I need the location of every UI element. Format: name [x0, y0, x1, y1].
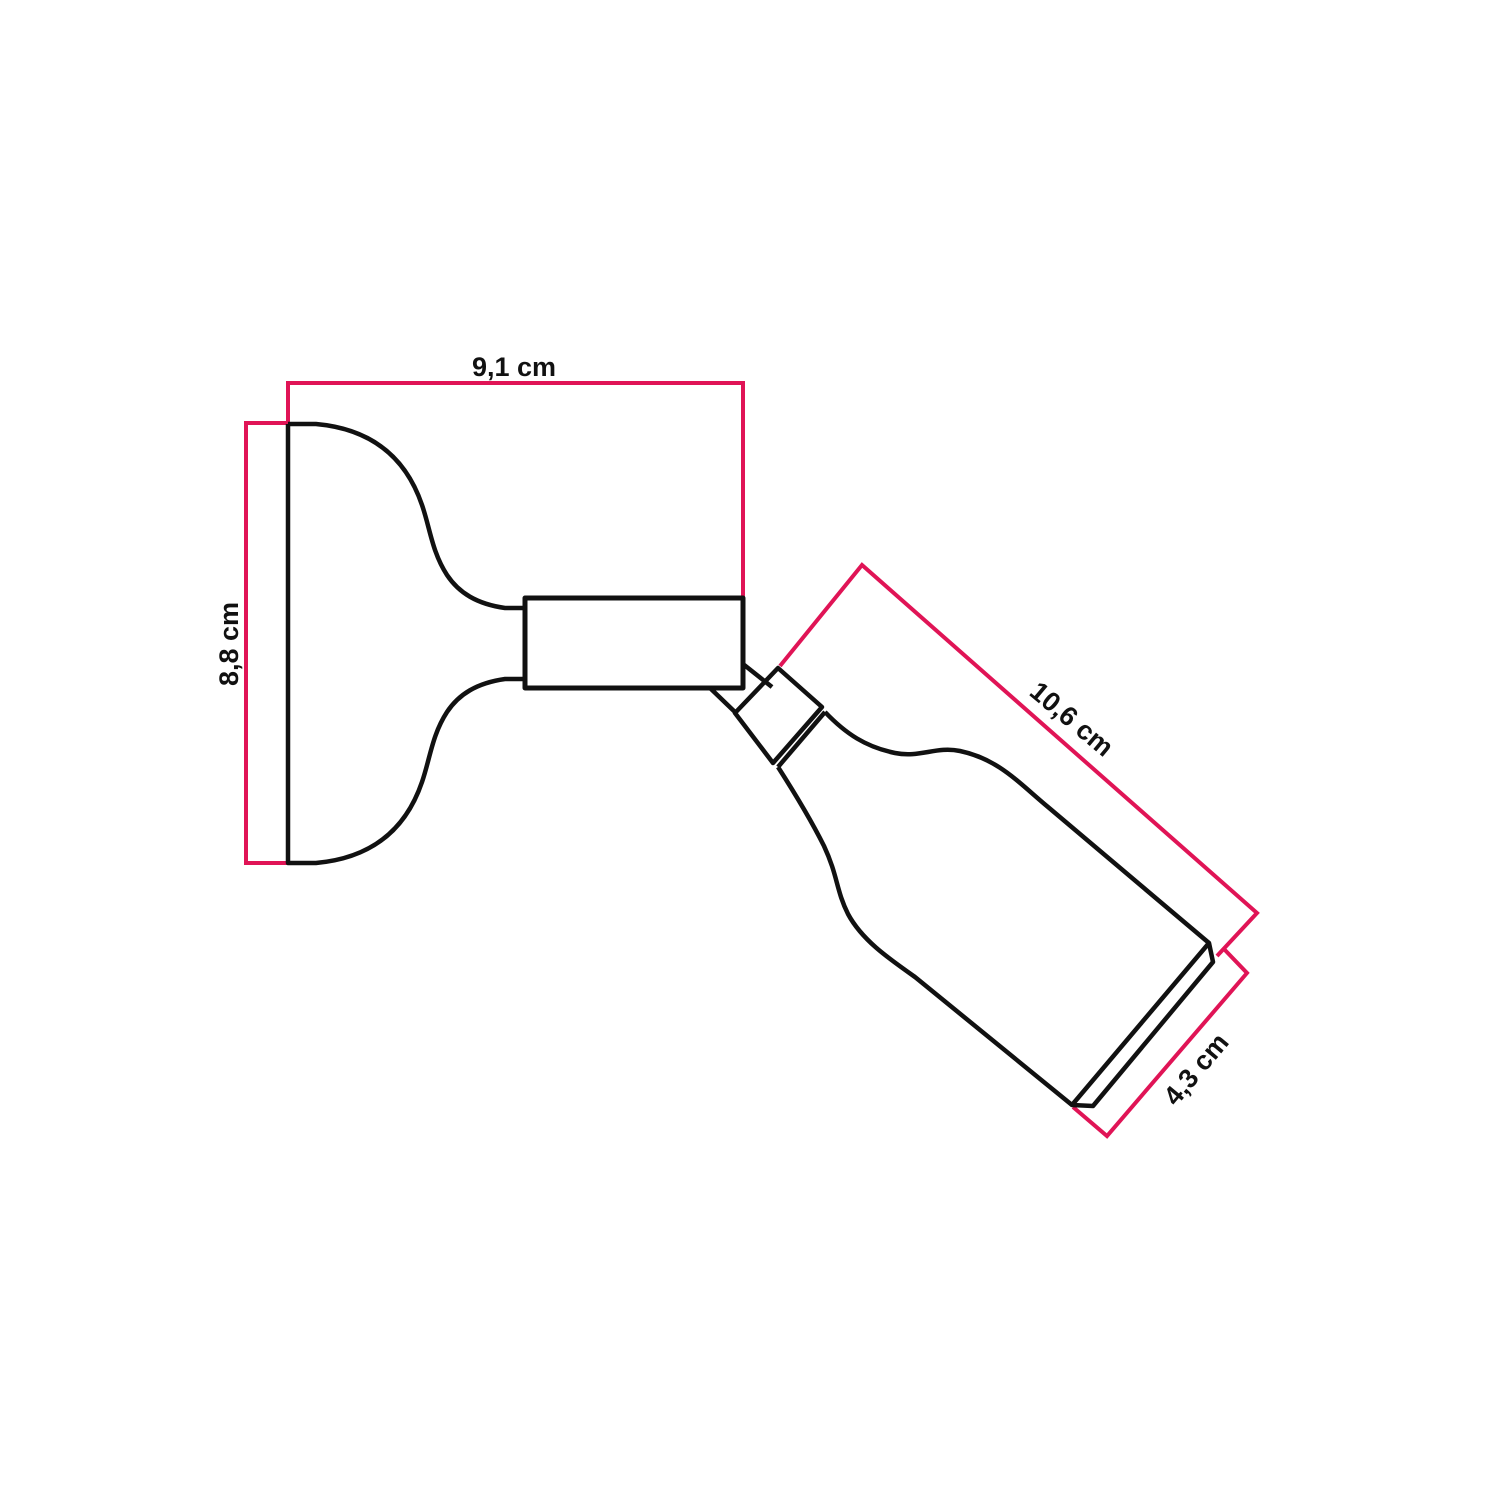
- lamp-holder-lower-edge: [778, 767, 1072, 1105]
- dim-diameter-label: 4,3 cm: [1158, 1027, 1235, 1111]
- dim-height-label: 8,8 cm: [214, 602, 244, 686]
- dim-width-line: [288, 383, 743, 597]
- wall-mount-bell-outline: [288, 424, 525, 863]
- technical-drawing-page: 9,1 cm 8,8 cm 10,6 cm 4,3 cm: [0, 0, 1500, 1500]
- swivel-joint-outline: [735, 668, 822, 763]
- dim-height-line: [246, 423, 288, 863]
- cylinder-body-outline: [525, 598, 743, 688]
- technical-drawing-svg: 9,1 cm 8,8 cm 10,6 cm 4,3 cm: [0, 0, 1500, 1500]
- dim-width-label: 9,1 cm: [472, 352, 556, 382]
- joint-seam-line: [778, 712, 825, 767]
- dim-length-line: [780, 565, 1257, 956]
- lamp-holder-upper-edge: [825, 712, 1209, 943]
